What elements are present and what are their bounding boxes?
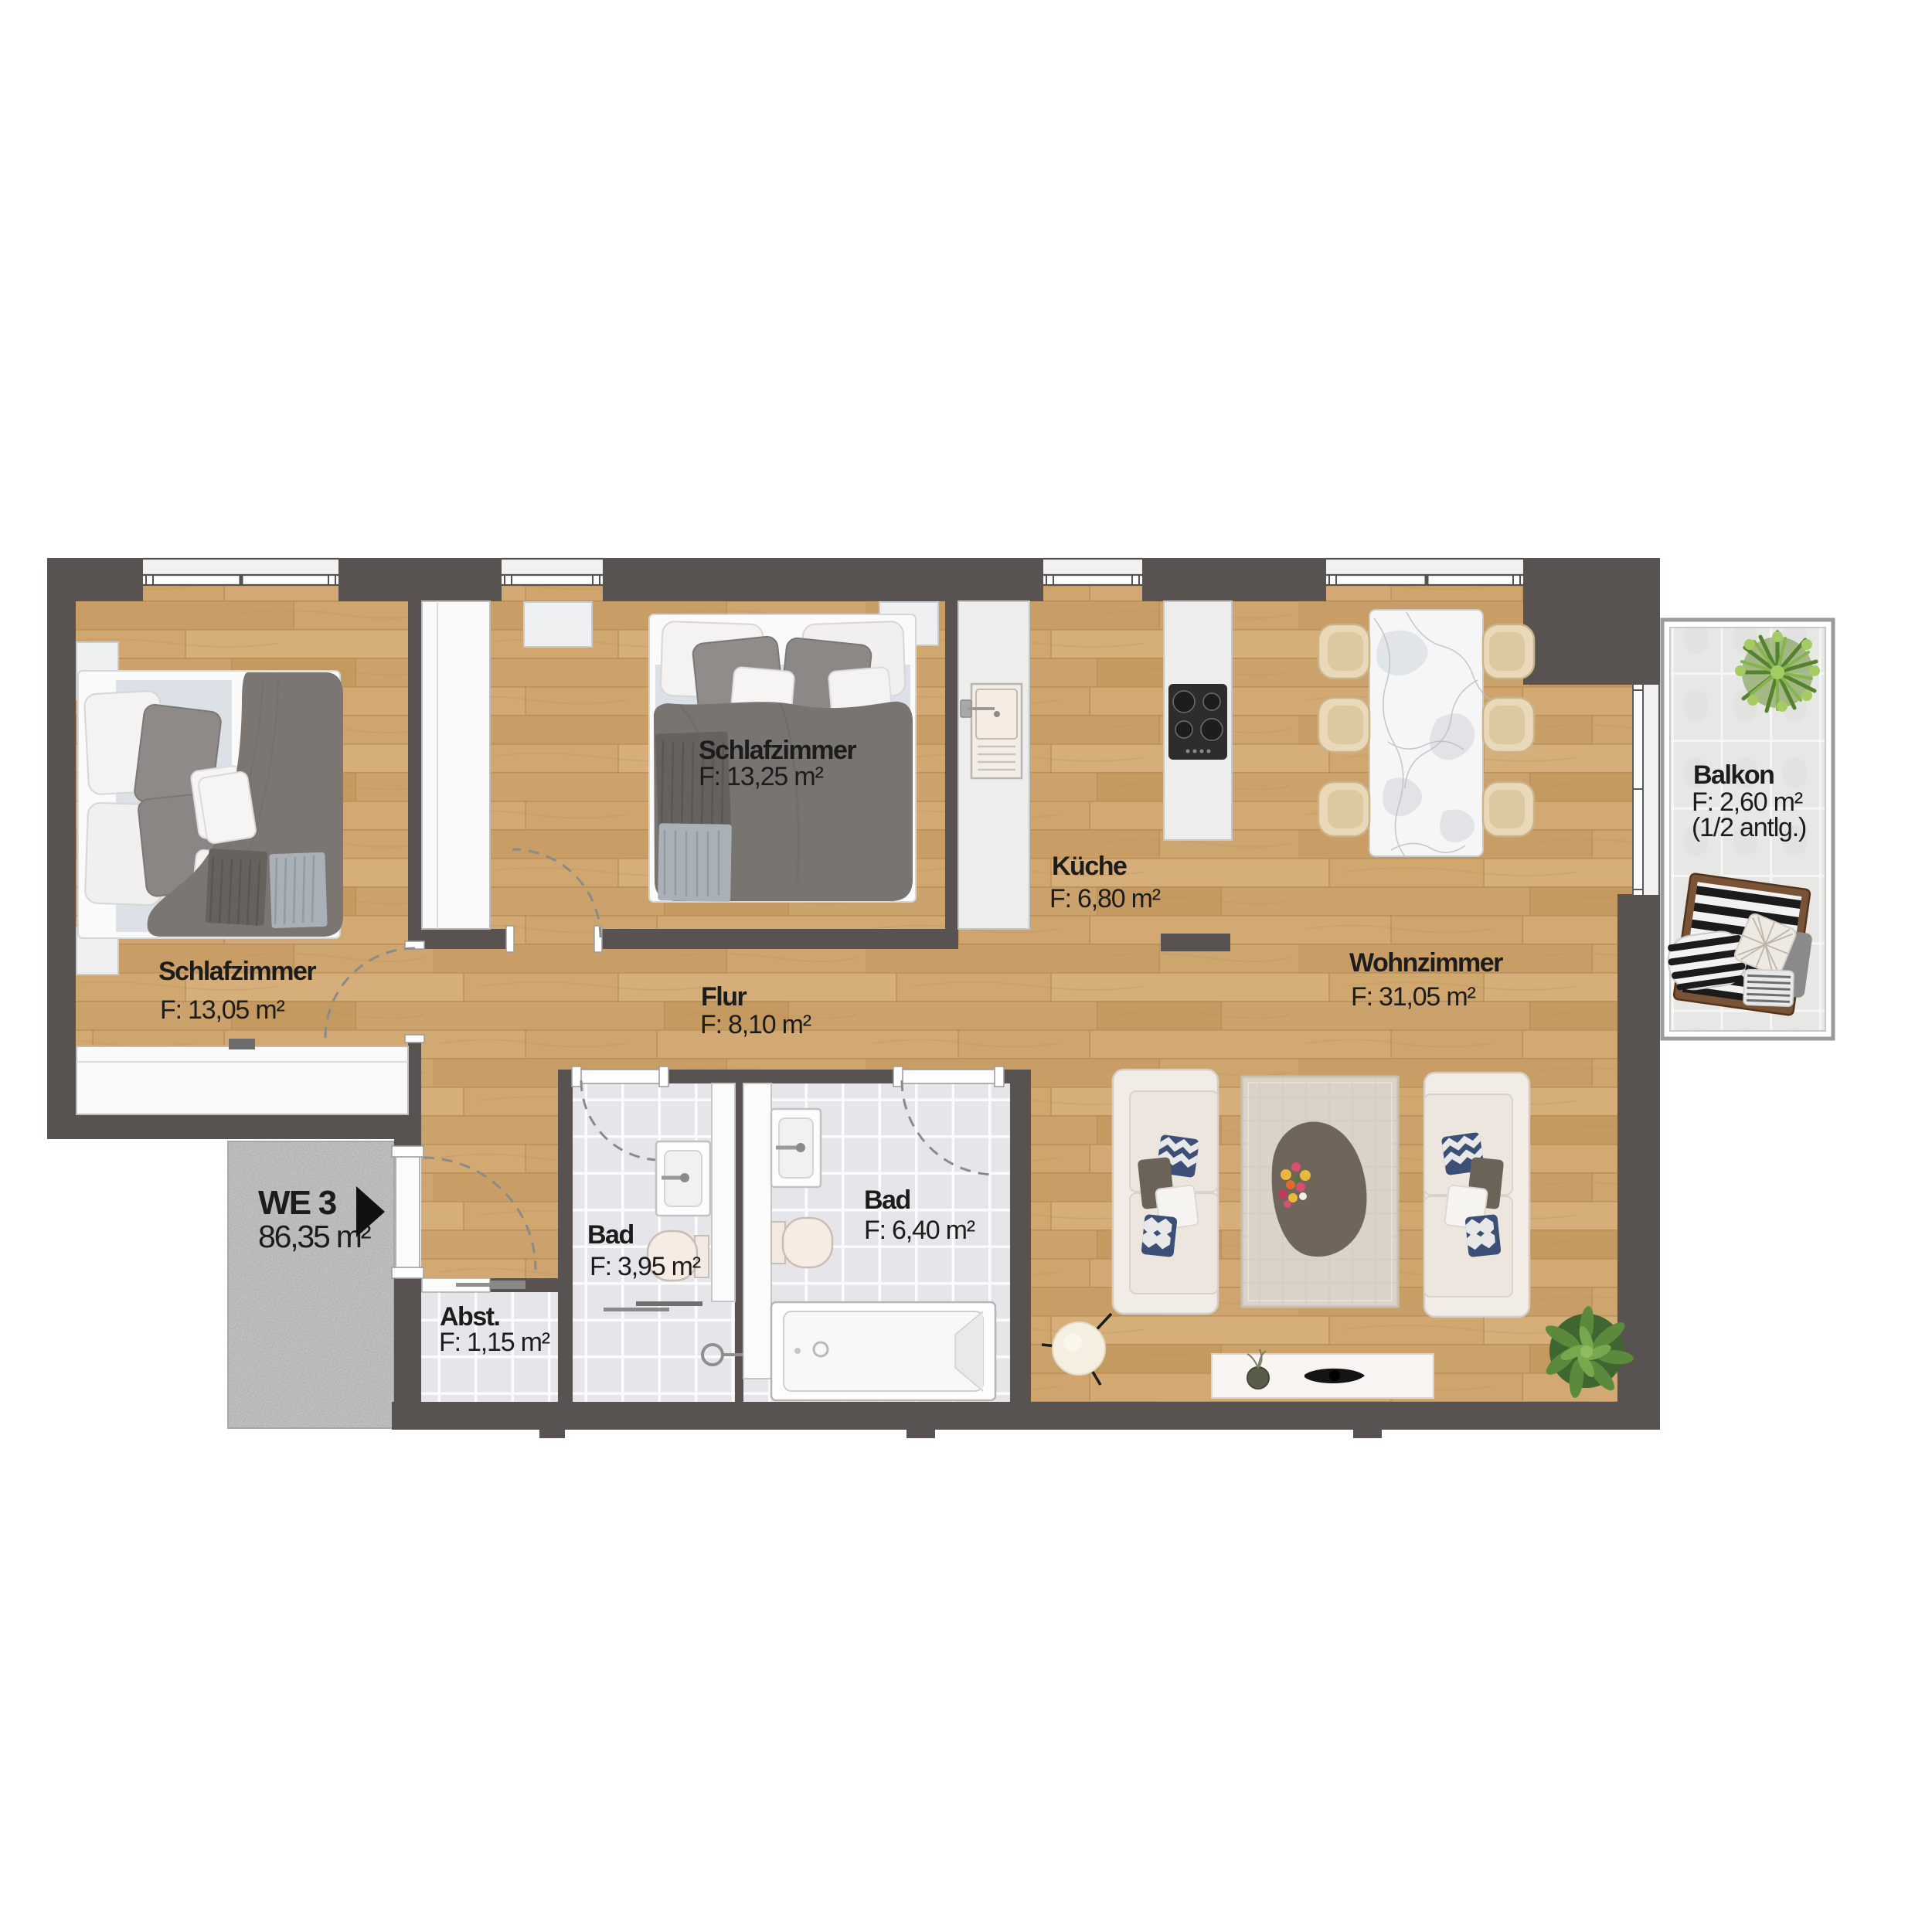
svg-text:Balkon: Balkon [1693,760,1774,790]
svg-text:Schlafzimmer: Schlafzimmer [158,957,316,986]
svg-text:86,35 m²: 86,35 m² [258,1219,371,1254]
svg-text:F: 8,10 m²: F: 8,10 m² [700,1010,811,1039]
svg-text:Küche: Küche [1052,852,1127,881]
svg-text:Bad: Bad [587,1220,634,1250]
svg-text:F: 6,40 m²: F: 6,40 m² [864,1216,975,1245]
svg-text:(1/2 antlg.): (1/2 antlg.) [1692,813,1806,842]
svg-text:Flur: Flur [701,982,747,1012]
svg-text:Schlafzimmer: Schlafzimmer [699,736,856,765]
svg-text:F: 13,25 m²: F: 13,25 m² [699,762,824,791]
svg-text:F: 31,05 m²: F: 31,05 m² [1351,982,1476,1012]
svg-text:F: 1,15 m²: F: 1,15 m² [439,1328,550,1357]
svg-text:F: 13,05 m²: F: 13,05 m² [160,995,285,1025]
svg-text:Wohnzimmer: Wohnzimmer [1349,948,1503,978]
svg-text:F: 6,80 m²: F: 6,80 m² [1049,884,1161,913]
svg-text:WE 3: WE 3 [258,1184,336,1222]
svg-text:Bad: Bad [864,1185,910,1215]
svg-text:F: 3,95 m²: F: 3,95 m² [590,1252,701,1281]
